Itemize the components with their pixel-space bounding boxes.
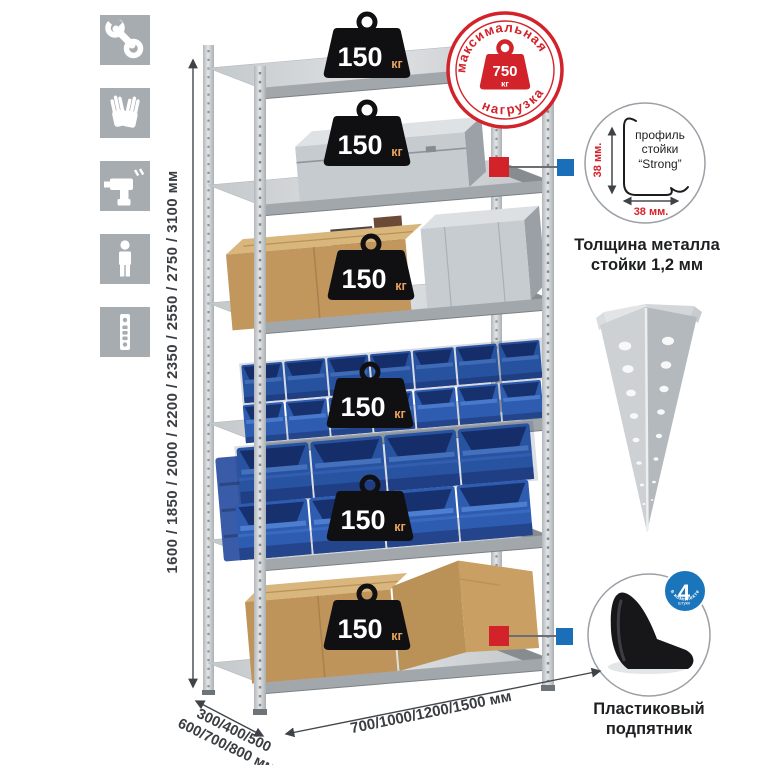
silver-case xyxy=(419,206,547,309)
profile-dim-vertical: 38 мм. xyxy=(592,143,604,178)
load-unit-6: кг xyxy=(391,629,402,643)
product-infographic: 150 кг 150 кг 150 кг 150 кг 150 кг xyxy=(0,0,765,765)
foot-caption-line1: Пластиковый xyxy=(570,700,728,720)
profile-detail-circle: 38 мм. 38 мм. профиль стойки “Strong” xyxy=(585,103,705,223)
profile-label-3: “Strong” xyxy=(638,157,681,171)
load-unit-3: кг xyxy=(395,279,406,293)
foot-caption-line2: подпятник xyxy=(570,720,728,740)
perforated-post-icon xyxy=(100,307,150,357)
person-icon xyxy=(100,234,150,284)
foot-count-badge: 4 штуки в комплекте xyxy=(664,570,706,612)
profile-caption-line1: Толщина металла xyxy=(568,236,726,256)
stamp-unit: кг xyxy=(501,79,509,89)
load-value-6: 150 xyxy=(337,614,382,644)
gloves-icon xyxy=(100,88,150,138)
load-unit-5: кг xyxy=(394,520,405,534)
foot-caption: Пластиковый подпятник xyxy=(570,700,728,740)
height-dimension-label: 1600 / 1850 / 2000 / 2200 / 2350 / 2550 … xyxy=(164,52,184,692)
profile-dim-horizontal: 38 мм. xyxy=(634,206,669,218)
profile-label-2: стойки xyxy=(642,142,679,156)
load-value-3: 150 xyxy=(341,264,386,294)
load-value-5: 150 xyxy=(340,505,385,535)
drill-icon xyxy=(100,161,150,211)
stamp-value: 750 xyxy=(492,63,517,80)
load-value-1: 150 xyxy=(337,42,382,72)
load-unit-1: кг xyxy=(391,57,402,71)
upright-post-image xyxy=(596,304,702,532)
load-value-4: 150 xyxy=(340,392,385,422)
foot-detail-circle: 4 штуки в комплекте xyxy=(588,570,710,696)
wrench-icon xyxy=(100,15,150,65)
shelf-load-badge-1: 150 кг xyxy=(324,14,411,78)
profile-label-1: профиль xyxy=(635,128,685,142)
profile-caption: Толщина металла стойки 1,2 мм xyxy=(568,236,726,276)
load-unit-4: кг xyxy=(394,407,405,421)
load-unit-2: кг xyxy=(391,145,402,159)
load-value-2: 150 xyxy=(337,130,382,160)
profile-caption-line2: стойки 1,2 мм xyxy=(568,256,726,276)
shelf-load-badge-2: 150 кг xyxy=(324,102,411,166)
